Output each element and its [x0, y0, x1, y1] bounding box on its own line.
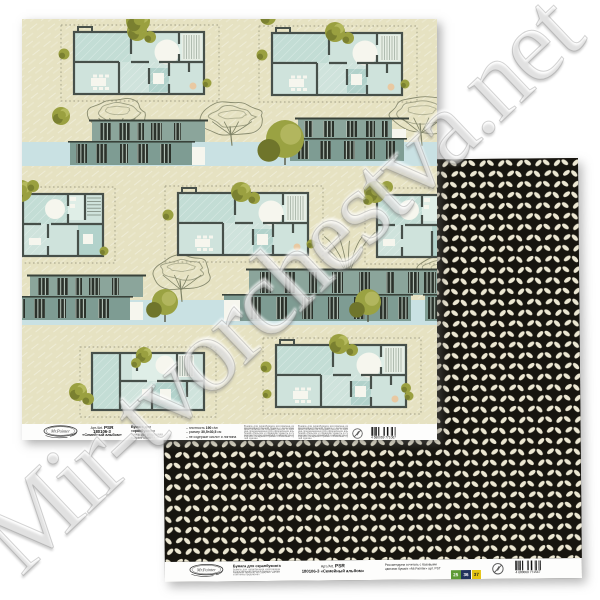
svg-text:Mr.Painter: Mr.Painter — [196, 567, 216, 572]
svg-text:4 680069 771067: 4 680069 771067 — [371, 435, 396, 438]
svg-text:4 680069 771567: 4 680069 771567 — [515, 570, 540, 574]
